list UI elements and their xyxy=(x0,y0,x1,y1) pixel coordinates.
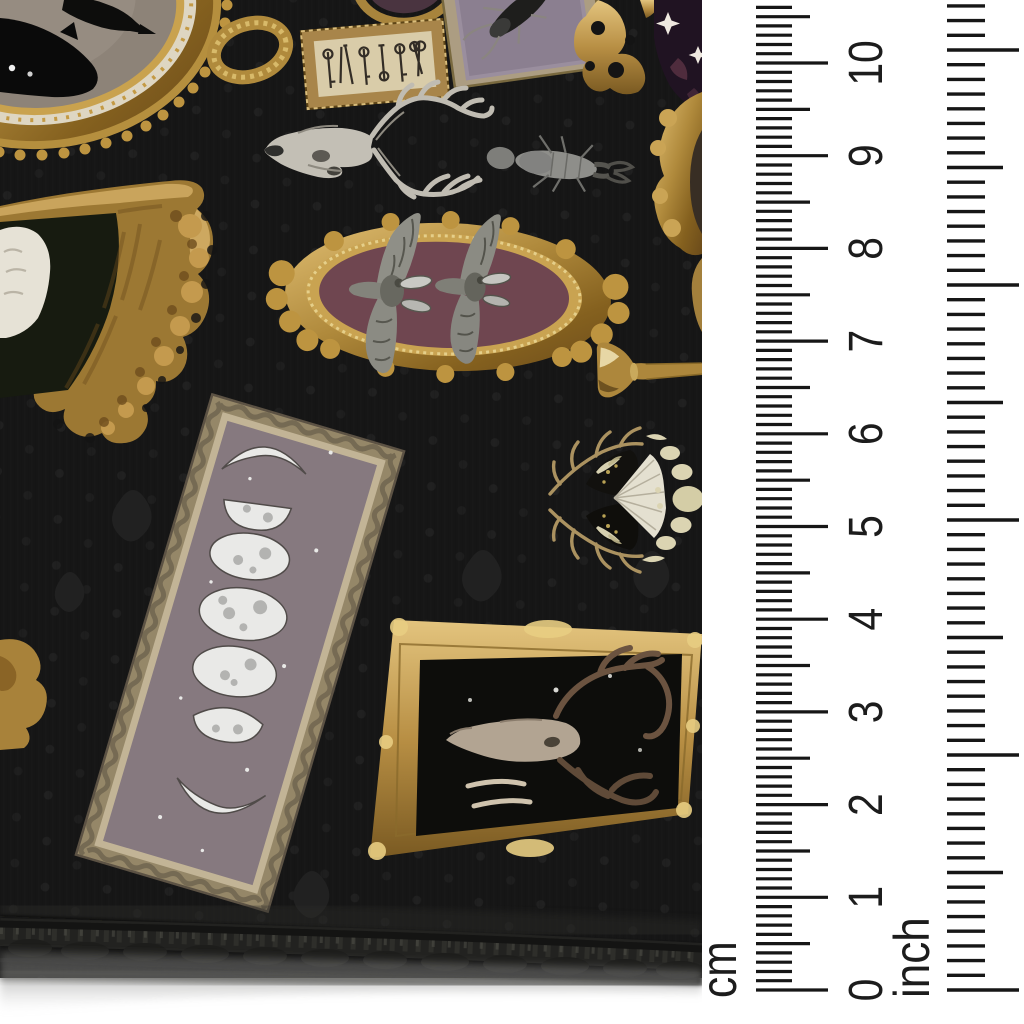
svg-text:1: 1 xyxy=(840,886,893,909)
svg-text:6: 6 xyxy=(840,422,893,445)
svg-text:5: 5 xyxy=(840,515,893,538)
svg-text:2: 2 xyxy=(840,793,893,816)
svg-text:cm: cm xyxy=(691,941,747,998)
svg-text:8: 8 xyxy=(840,237,893,260)
svg-text:inch: inch xyxy=(883,917,939,998)
svg-text:9: 9 xyxy=(840,144,893,167)
svg-text:10: 10 xyxy=(840,40,893,85)
svg-text:4: 4 xyxy=(840,608,893,631)
svg-text:3: 3 xyxy=(840,701,893,724)
svg-text:7: 7 xyxy=(840,330,893,353)
